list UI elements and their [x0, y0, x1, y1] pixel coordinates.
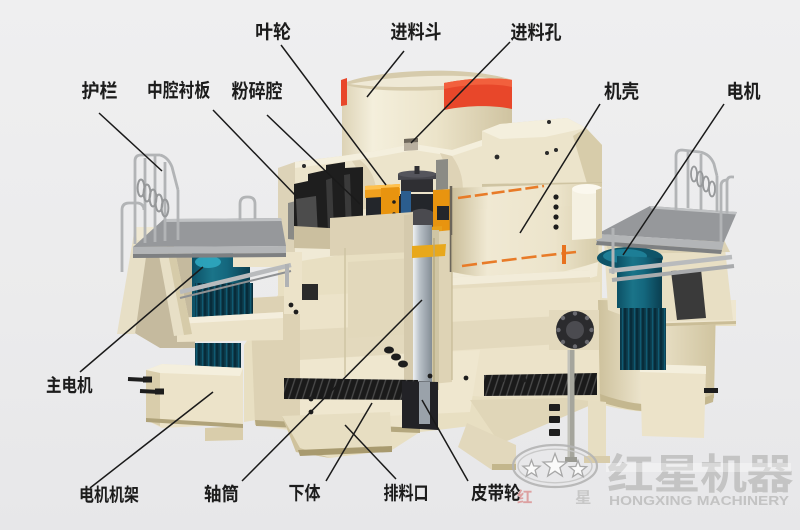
svg-text:HONGXING MACHINERY: HONGXING MACHINERY [609, 493, 789, 508]
